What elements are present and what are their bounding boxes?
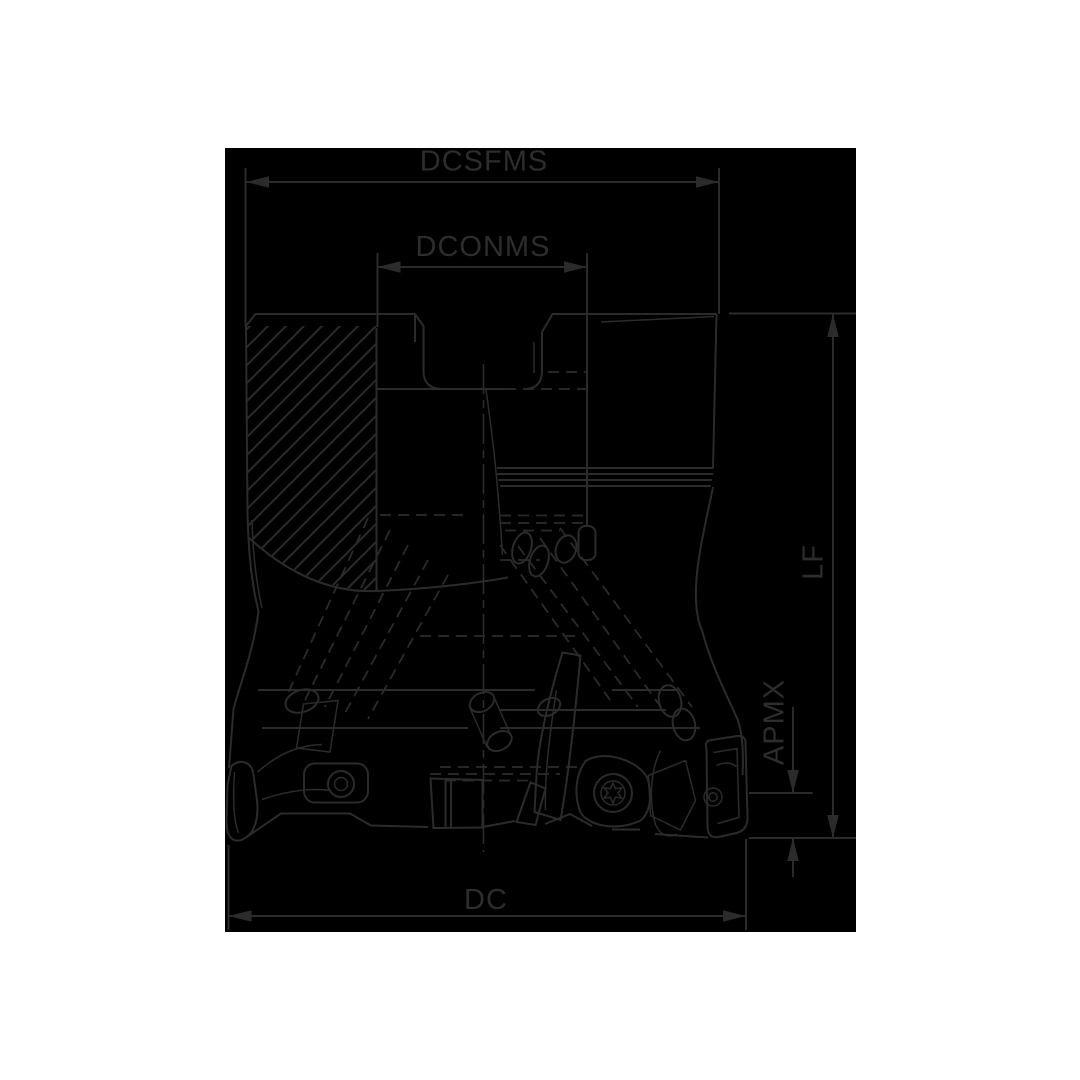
hatch-region <box>246 326 377 590</box>
dimension-label-dc: DC <box>464 884 508 916</box>
dimension-label-lf: LF <box>798 544 830 580</box>
section-hatch <box>246 326 377 590</box>
technical-drawing: DCSFMS DCONMS LF APMX DC <box>0 0 1080 1080</box>
dimension-label-apmx: APMX <box>759 679 791 765</box>
dimension-label-dconms: DCONMS <box>416 231 551 263</box>
drawing-canvas: DCSFMS DCONMS LF APMX DC <box>0 0 1080 1080</box>
dimension-label-dcsfms: DCSFMS <box>420 146 548 178</box>
